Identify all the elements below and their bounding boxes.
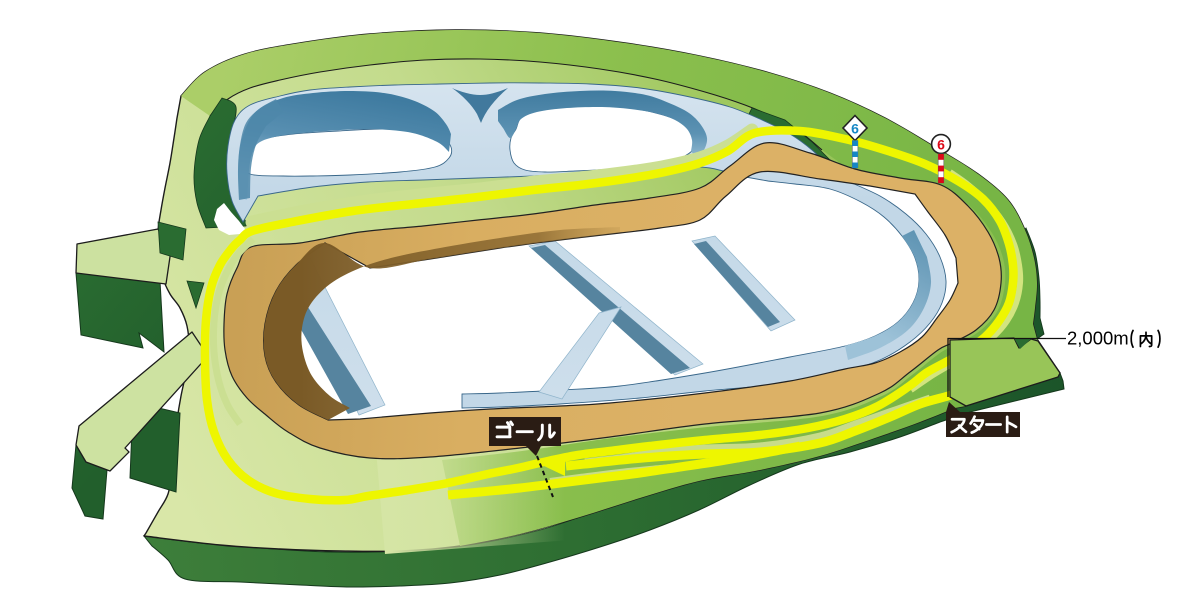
svg-text:2,000m: 2,000m bbox=[1067, 328, 1129, 349]
svg-text:6: 6 bbox=[851, 121, 859, 137]
svg-text:6: 6 bbox=[937, 137, 945, 153]
